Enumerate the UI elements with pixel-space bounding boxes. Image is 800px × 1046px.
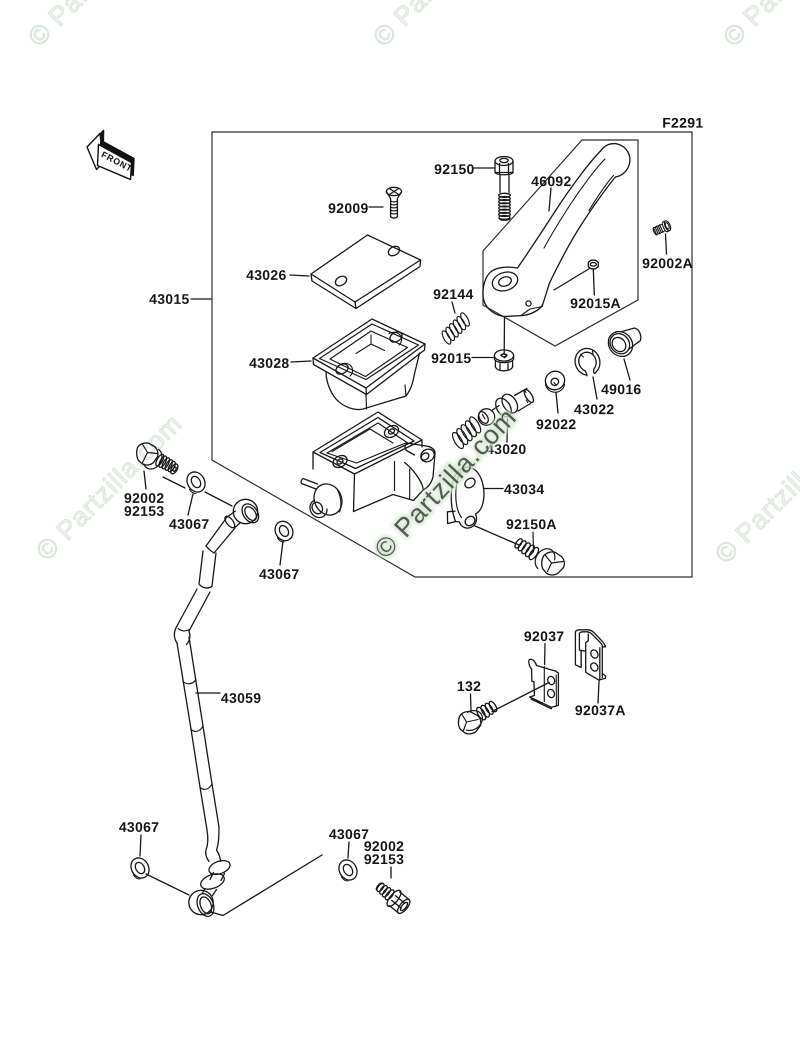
svg-text:92144: 92144 <box>433 286 473 302</box>
svg-text:43022: 43022 <box>574 401 614 417</box>
svg-text:92037A: 92037A <box>575 702 626 718</box>
svg-text:F2291: F2291 <box>662 115 703 131</box>
svg-text:43026: 43026 <box>246 267 286 283</box>
svg-text:© Partzilla.com: © Partzilla.com <box>22 0 180 52</box>
svg-text:43067: 43067 <box>119 819 159 835</box>
svg-text:49016: 49016 <box>601 381 641 397</box>
svg-text:92153: 92153 <box>364 851 404 867</box>
svg-text:92015: 92015 <box>431 350 471 366</box>
svg-text:© Partzilla.com: © Partzilla.com <box>709 411 800 569</box>
svg-text:132: 132 <box>457 678 481 694</box>
svg-text:92002A: 92002A <box>642 255 693 271</box>
svg-text:92153: 92153 <box>124 503 164 519</box>
svg-text:43067: 43067 <box>259 566 299 582</box>
svg-text:92037: 92037 <box>524 628 564 644</box>
svg-text:© Partzilla.com: © Partzilla.com <box>30 408 188 566</box>
svg-text:43067: 43067 <box>169 516 209 532</box>
svg-text:92015A: 92015A <box>570 295 621 311</box>
svg-text:46092: 46092 <box>531 173 571 189</box>
svg-text:43028: 43028 <box>249 355 289 371</box>
svg-text:43034: 43034 <box>504 481 544 497</box>
svg-text:© Partzilla.com: © Partzilla.com <box>367 0 525 52</box>
svg-text:43015: 43015 <box>149 291 189 307</box>
svg-text:92150: 92150 <box>434 161 474 177</box>
svg-text:43059: 43059 <box>221 690 261 706</box>
svg-text:92022: 92022 <box>536 416 576 432</box>
svg-text:© Partzilla.com: © Partzilla.com <box>717 0 800 52</box>
svg-text:92009: 92009 <box>328 200 368 216</box>
svg-text:92150A: 92150A <box>506 516 557 532</box>
